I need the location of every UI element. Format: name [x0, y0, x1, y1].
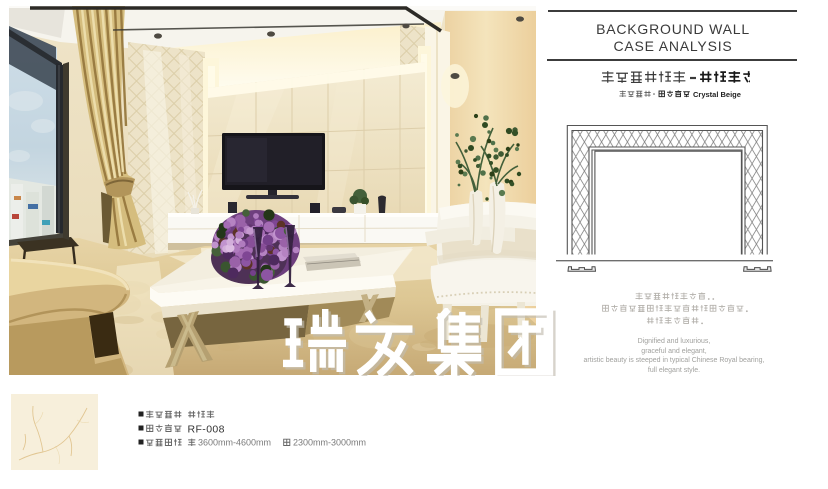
svg-text:2300mm-3000mm: 2300mm-3000mm	[293, 437, 366, 447]
svg-text:Crystal Beige: Crystal Beige	[693, 90, 741, 99]
svg-text:RF-008: RF-008	[188, 423, 225, 435]
svg-text:3600mm-4600mm: 3600mm-4600mm	[198, 437, 271, 447]
